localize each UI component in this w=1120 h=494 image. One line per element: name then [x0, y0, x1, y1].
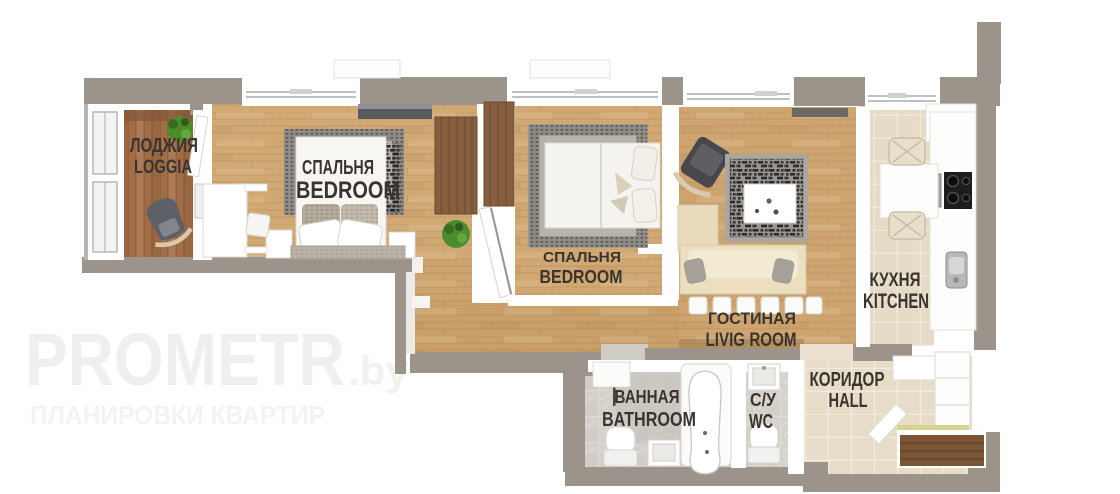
svg-text:С/У: С/У: [750, 390, 777, 410]
svg-text:PROMETR: PROMETR: [25, 318, 345, 401]
svg-text:LOGGIA: LOGGIA: [134, 157, 192, 178]
svg-text:КОРИДОР: КОРИДОР: [810, 368, 885, 391]
svg-text:ЛОДЖИЯ: ЛОДЖИЯ: [130, 135, 198, 157]
svg-text:КУХНЯ: КУХНЯ: [870, 269, 921, 291]
svg-text:BEDROOM: BEDROOM: [540, 267, 623, 287]
svg-text:ПЛАНИРОВКИ КВАРТИР: ПЛАНИРОВКИ КВАРТИР: [30, 400, 325, 430]
svg-text:KITCHEN: KITCHEN: [863, 290, 929, 313]
svg-text:LIVIG ROOM: LIVIG ROOM: [706, 330, 797, 351]
svg-text:BEDROOM: BEDROOM: [296, 177, 400, 204]
svg-text:BATHROOM: BATHROOM: [602, 408, 696, 431]
svg-text:СПАЛЬНЯ: СПАЛЬНЯ: [543, 249, 621, 266]
svg-text:ГОСТИНАЯ: ГОСТИНАЯ: [708, 310, 796, 328]
svg-text:ВАННАЯ: ВАННАЯ: [615, 386, 680, 407]
svg-text:СПАЛЬНЯ: СПАЛЬНЯ: [302, 156, 374, 179]
svg-text:WC: WC: [749, 410, 773, 433]
svg-text:HALL: HALL: [829, 389, 868, 412]
